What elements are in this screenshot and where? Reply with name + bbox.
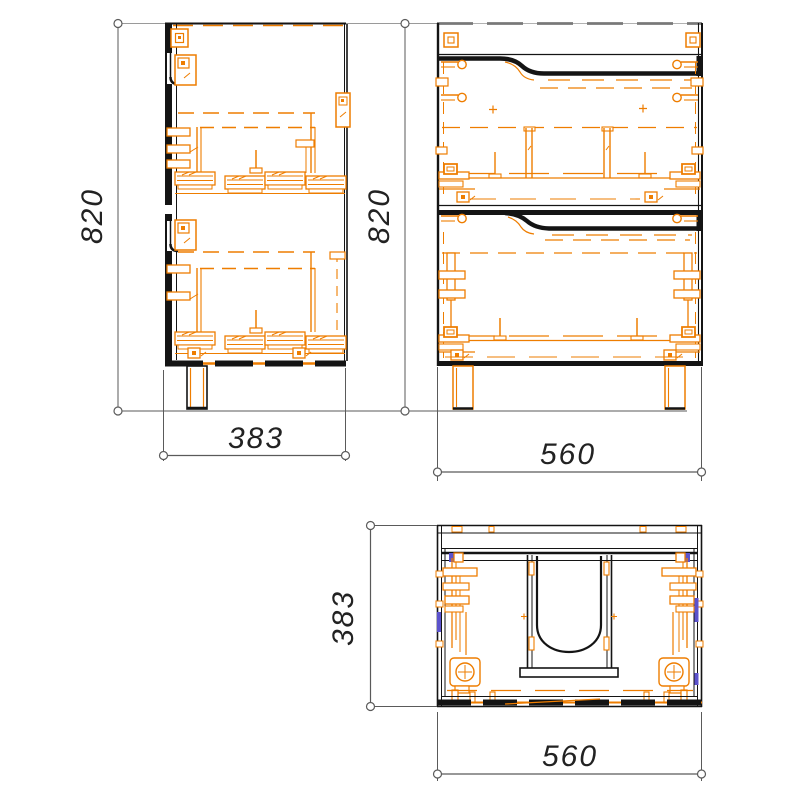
side-handle-bracket-bottom <box>175 220 196 250</box>
countertop-strip <box>437 33 702 55</box>
dim-label-side-height: 820 <box>76 188 109 244</box>
side-handle-bracket-top <box>175 55 196 85</box>
front-left-leg <box>453 366 473 409</box>
dim-label-top-width: 560 <box>542 740 598 773</box>
drawer-divider <box>437 206 702 213</box>
drawer1-internals <box>436 60 703 202</box>
front-view <box>346 23 703 409</box>
dim-top-depth: 383 <box>327 522 437 711</box>
drawer1-post <box>602 127 613 178</box>
side-drawer2-internals <box>167 252 346 354</box>
drawer2-right-slide <box>674 253 700 330</box>
side-cam-fitting <box>171 29 188 47</box>
blue-fitting <box>695 598 699 622</box>
dim-front-height: 820 <box>363 20 409 416</box>
side-view <box>165 23 350 409</box>
siphon-u-outline <box>537 556 601 652</box>
drawer2-internals <box>439 214 700 360</box>
drawer1-post <box>524 127 535 178</box>
drawer2-handle-groove <box>505 213 702 235</box>
drawer2-left-slide <box>439 253 465 330</box>
side-leg <box>187 366 207 409</box>
dim-label-top-depth: 383 <box>327 590 360 646</box>
side-drawer1-internals <box>167 113 346 194</box>
top-view <box>436 525 703 707</box>
dim-side-height: 820 <box>76 20 165 416</box>
dim-label-front-width: 560 <box>540 438 596 471</box>
dim-label-front-height: 820 <box>363 188 396 244</box>
side-back-hinge-plate <box>336 93 350 127</box>
technical-drawing: 820 383 820 560 383 560 <box>0 0 800 800</box>
top-front-edge <box>437 691 702 705</box>
blue-fitting <box>437 612 441 632</box>
dim-label-side-depth: 383 <box>228 422 284 455</box>
sink-cutout <box>520 555 618 677</box>
top-back-rails <box>437 527 702 563</box>
blue-fitting <box>695 673 699 685</box>
dim-top-width: 560 <box>434 712 706 781</box>
drawer1-handle-groove <box>437 56 702 80</box>
front-right-leg <box>665 366 685 409</box>
